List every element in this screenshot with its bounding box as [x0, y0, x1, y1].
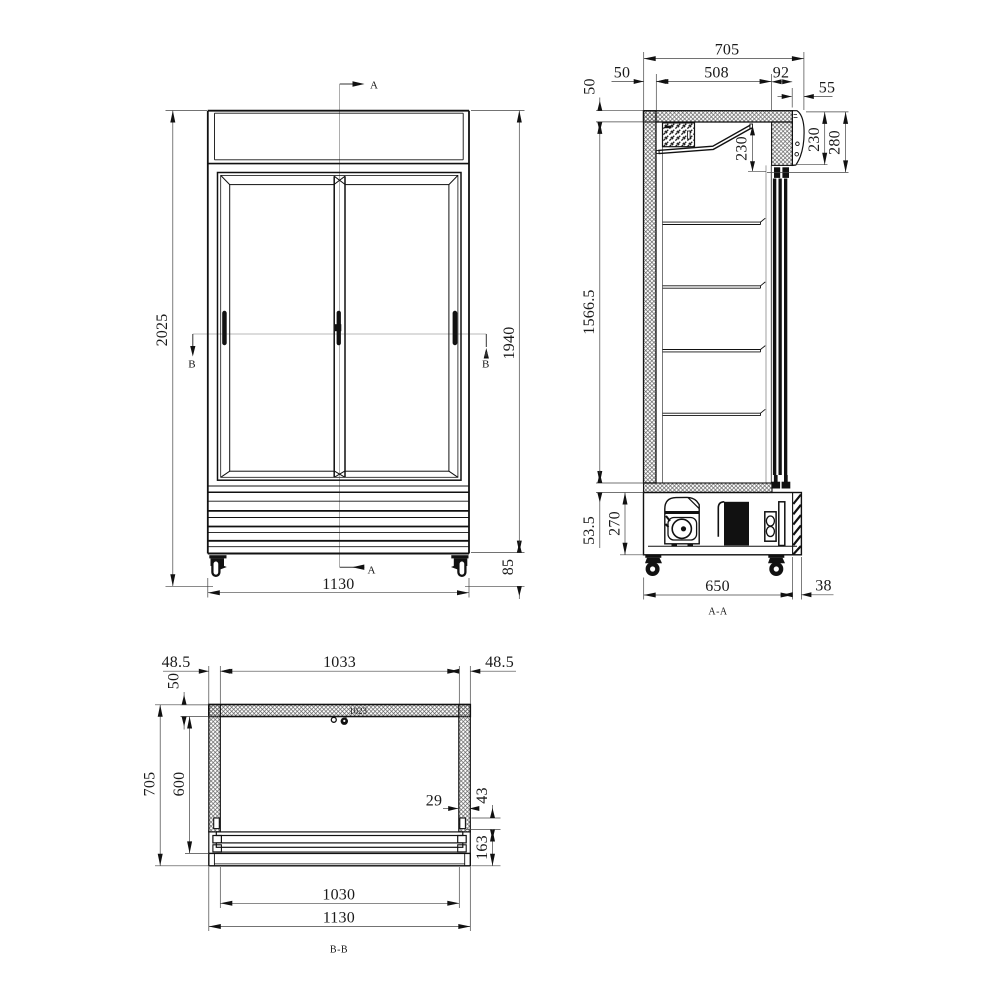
svg-text:B: B [482, 359, 489, 371]
svg-text:163: 163 [474, 835, 491, 860]
svg-text:705: 705 [142, 772, 159, 797]
svg-text:230: 230 [806, 127, 823, 152]
svg-text:50: 50 [614, 65, 630, 82]
svg-text:705: 705 [715, 42, 740, 59]
svg-text:B-B: B-B [330, 945, 348, 956]
svg-text:270: 270 [607, 511, 624, 536]
svg-text:48.5: 48.5 [162, 654, 191, 671]
svg-text:280: 280 [827, 130, 844, 155]
svg-text:1130: 1130 [323, 910, 355, 927]
svg-text:B: B [188, 359, 195, 371]
svg-text:A-A: A-A [708, 607, 728, 618]
svg-text:50: 50 [582, 78, 599, 94]
svg-text:85: 85 [500, 559, 517, 575]
svg-text:A: A [368, 565, 376, 577]
svg-text:600: 600 [171, 772, 188, 797]
svg-text:53.5: 53.5 [581, 516, 598, 545]
svg-text:29: 29 [426, 793, 442, 810]
svg-text:650: 650 [705, 578, 730, 595]
svg-text:48.5: 48.5 [485, 654, 514, 671]
svg-text:92: 92 [773, 65, 789, 82]
svg-text:50: 50 [166, 673, 183, 689]
svg-text:2025: 2025 [154, 314, 171, 347]
svg-text:230: 230 [734, 136, 751, 161]
svg-text:A: A [370, 80, 378, 92]
svg-text:1023: 1023 [349, 706, 368, 716]
svg-text:1130: 1130 [322, 576, 354, 593]
svg-text:508: 508 [704, 65, 729, 82]
svg-text:43: 43 [474, 787, 491, 803]
svg-text:1940: 1940 [501, 327, 518, 360]
svg-text:55: 55 [819, 80, 835, 97]
svg-text:1566.5: 1566.5 [581, 289, 598, 334]
svg-text:38: 38 [815, 578, 831, 595]
svg-text:1033: 1033 [323, 654, 356, 671]
svg-text:1030: 1030 [322, 887, 355, 904]
